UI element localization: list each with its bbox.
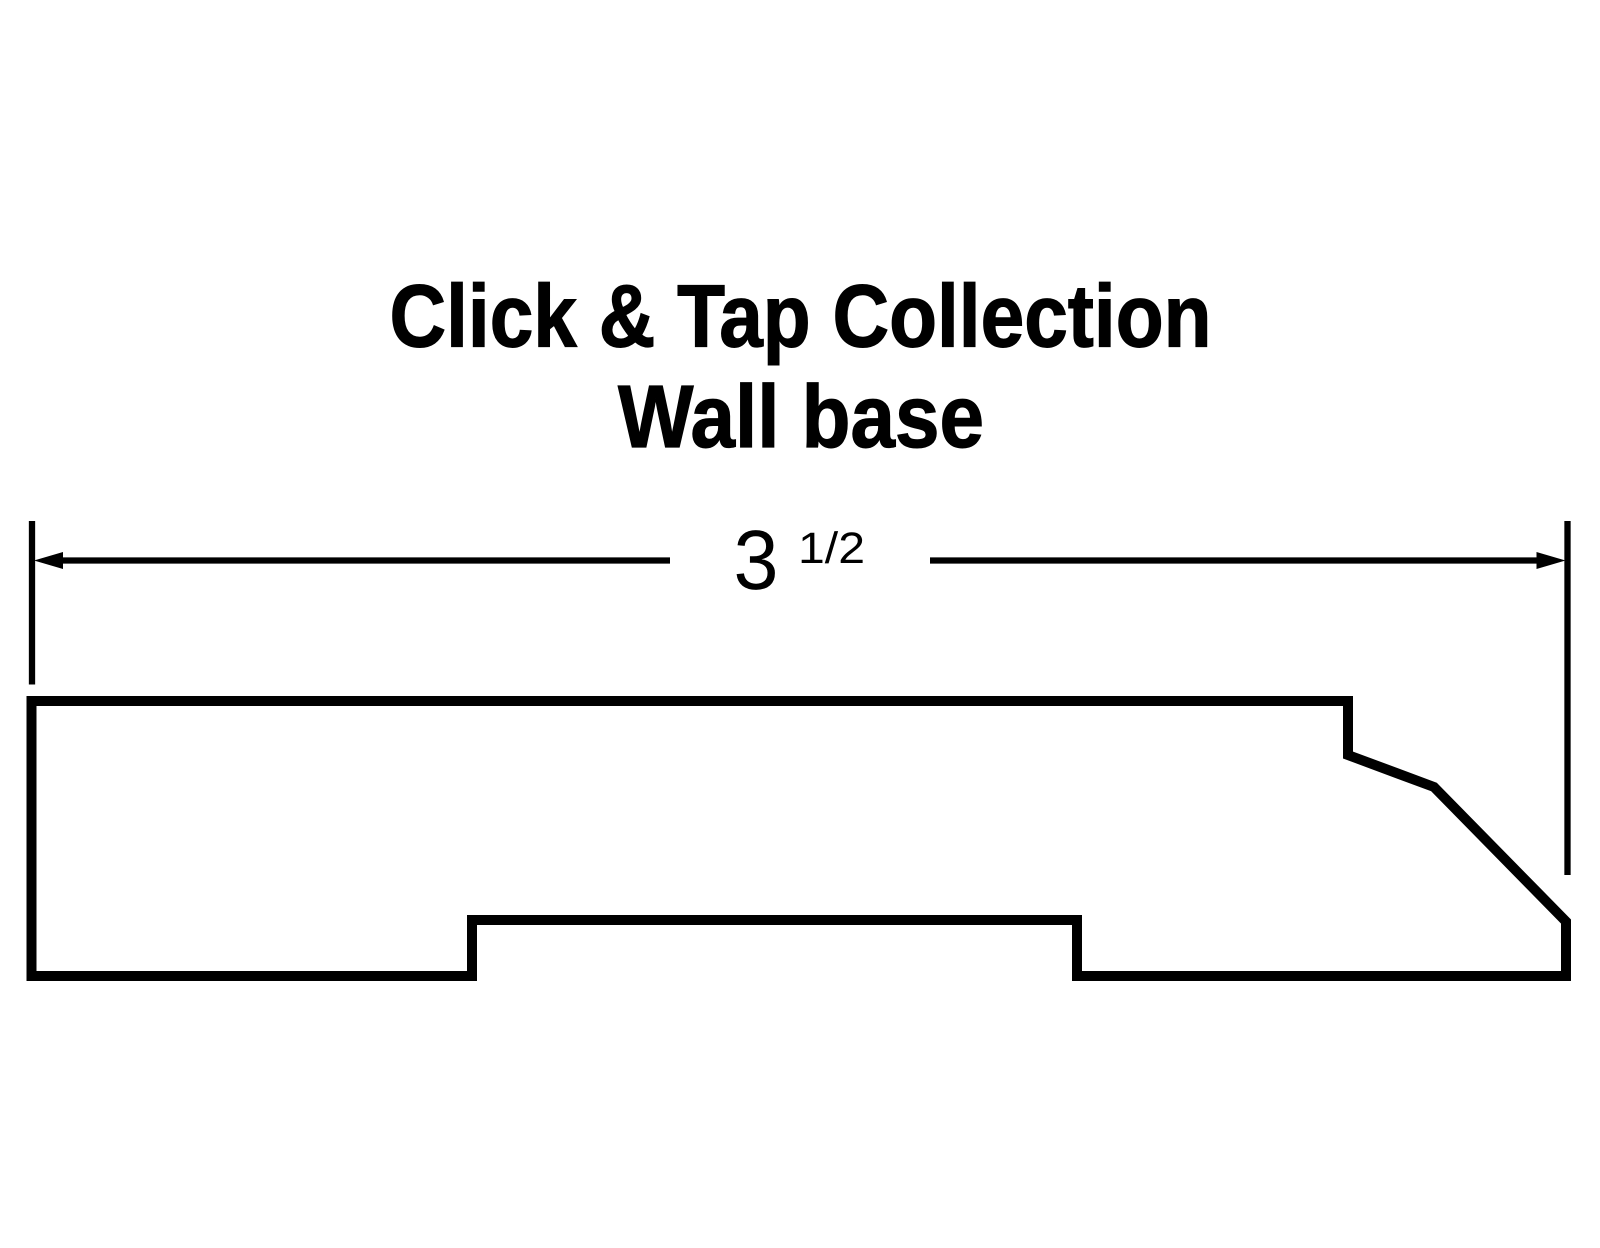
svg-text:3: 3 bbox=[734, 513, 779, 607]
svg-text:Click & Tap Collection: Click & Tap Collection bbox=[390, 267, 1212, 366]
svg-text:Wall base: Wall base bbox=[618, 367, 984, 466]
svg-text:1/2: 1/2 bbox=[798, 524, 865, 573]
